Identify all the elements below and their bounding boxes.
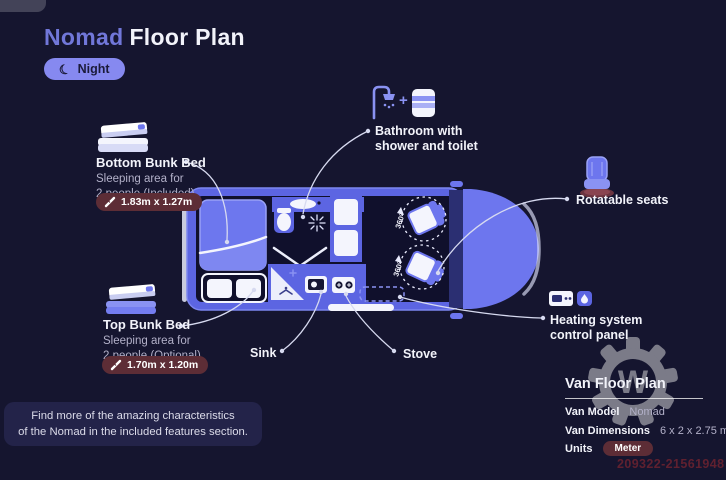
stove-label: Stove — [403, 347, 437, 362]
footer-note: Find more of the amazing characteristics… — [4, 402, 262, 446]
van-rear-bumper — [182, 198, 187, 302]
leader-dots — [179, 129, 569, 353]
top-bunk-dimensions-badge: 1.70m x 1.20m — [102, 356, 208, 374]
bottom-bunk-bed-icon — [92, 120, 154, 156]
page-title-accent: Nomad — [44, 24, 123, 50]
heating-panel-icon — [549, 291, 592, 306]
van-wardrobe — [271, 267, 304, 300]
van-step — [328, 304, 394, 311]
rotation-arrow-1 — [397, 207, 404, 215]
seat-rotation-label-2: 360° — [391, 260, 404, 278]
bottom-bunk-title: Bottom Bunk Bed — [96, 155, 206, 170]
van-model-label: Van Model — [565, 406, 619, 418]
van-hood-highlight — [524, 204, 539, 294]
van-bench — [202, 274, 266, 302]
page-title-rest: Floor Plan — [129, 24, 244, 50]
van-model-row: Van Model Nomad — [565, 406, 665, 418]
van-bed — [200, 200, 266, 270]
ruler-icon — [104, 196, 116, 208]
footer-note-line1: Find more of the amazing characteristics — [31, 408, 234, 424]
seat-rotation-circle-2 — [400, 245, 444, 289]
info-panel-title: Van Floor Plan — [565, 376, 666, 392]
van-dimensions-label: Van Dimensions — [565, 425, 650, 437]
sink-label: Sink — [250, 346, 276, 361]
van-shower-door — [274, 248, 326, 266]
droplet-icon — [577, 291, 592, 306]
ruler-icon — [110, 359, 122, 371]
van-dimensions-value: 6 x 2 x 2.75 m — [660, 425, 726, 437]
seat-rotation-label-1: 360° — [393, 212, 406, 230]
van-bathroom-counter — [272, 197, 364, 212]
van-model-value: Nomad — [629, 406, 664, 418]
top-bunk-bed-icon — [100, 282, 162, 318]
van-rotatable-seat-1 — [407, 198, 450, 236]
corner-artifact — [0, 0, 46, 12]
info-panel-divider — [565, 398, 703, 399]
rotatable-seats-label: Rotatable seats — [576, 193, 668, 208]
van-dimensions-row: Van Dimensions 6 x 2 x 2.75 m — [565, 425, 726, 437]
van-mirror-top — [450, 181, 463, 187]
watermark-id: 209322-21561948 — [617, 457, 725, 471]
units-row: Units Meter — [565, 441, 653, 456]
van-sink — [305, 276, 327, 293]
van-body — [187, 188, 463, 310]
van-rotatable-seat-2 — [405, 250, 448, 288]
heating-label: Heating system control panel — [550, 313, 642, 343]
seat-rotation-circle-1 — [402, 197, 446, 241]
page-title: NomadFloor Plan — [44, 24, 245, 51]
night-mode-label: Night — [78, 62, 110, 76]
night-mode-toggle[interactable]: ☾ Night — [44, 58, 125, 80]
top-bunk-title: Top Bunk Bed — [103, 317, 190, 332]
bathroom-label: Bathroom with shower and toilet — [375, 124, 478, 154]
van-dinette-seats — [330, 196, 362, 262]
footer-note-line2: of the Nomad in the included features se… — [18, 424, 248, 440]
plus-icon: + — [399, 92, 408, 109]
toilet-icon — [411, 88, 436, 118]
van-stove — [332, 277, 355, 293]
shower-icon — [369, 82, 397, 120]
moon-icon: ☾ — [57, 61, 72, 77]
units-label: Units — [565, 443, 593, 455]
van-toilet — [274, 206, 294, 233]
units-value-badge: Meter — [603, 441, 654, 456]
van-mirror-bottom — [450, 313, 463, 319]
van-cab-floor — [366, 196, 449, 302]
van-drawing: 360° 360° — [182, 181, 539, 319]
leader-lines — [181, 131, 567, 351]
heating-panel-marker — [360, 287, 404, 301]
van-shower-spray — [309, 215, 325, 231]
van-hood — [463, 189, 539, 309]
van-interior — [196, 196, 448, 302]
rotation-arrow-2 — [395, 255, 402, 263]
infographic-canvas: W — [0, 0, 726, 480]
van-kitchen — [268, 264, 380, 302]
bottom-bunk-dimensions-badge: 1.83m x 1.27m — [96, 193, 202, 211]
van-windshield — [449, 190, 464, 308]
